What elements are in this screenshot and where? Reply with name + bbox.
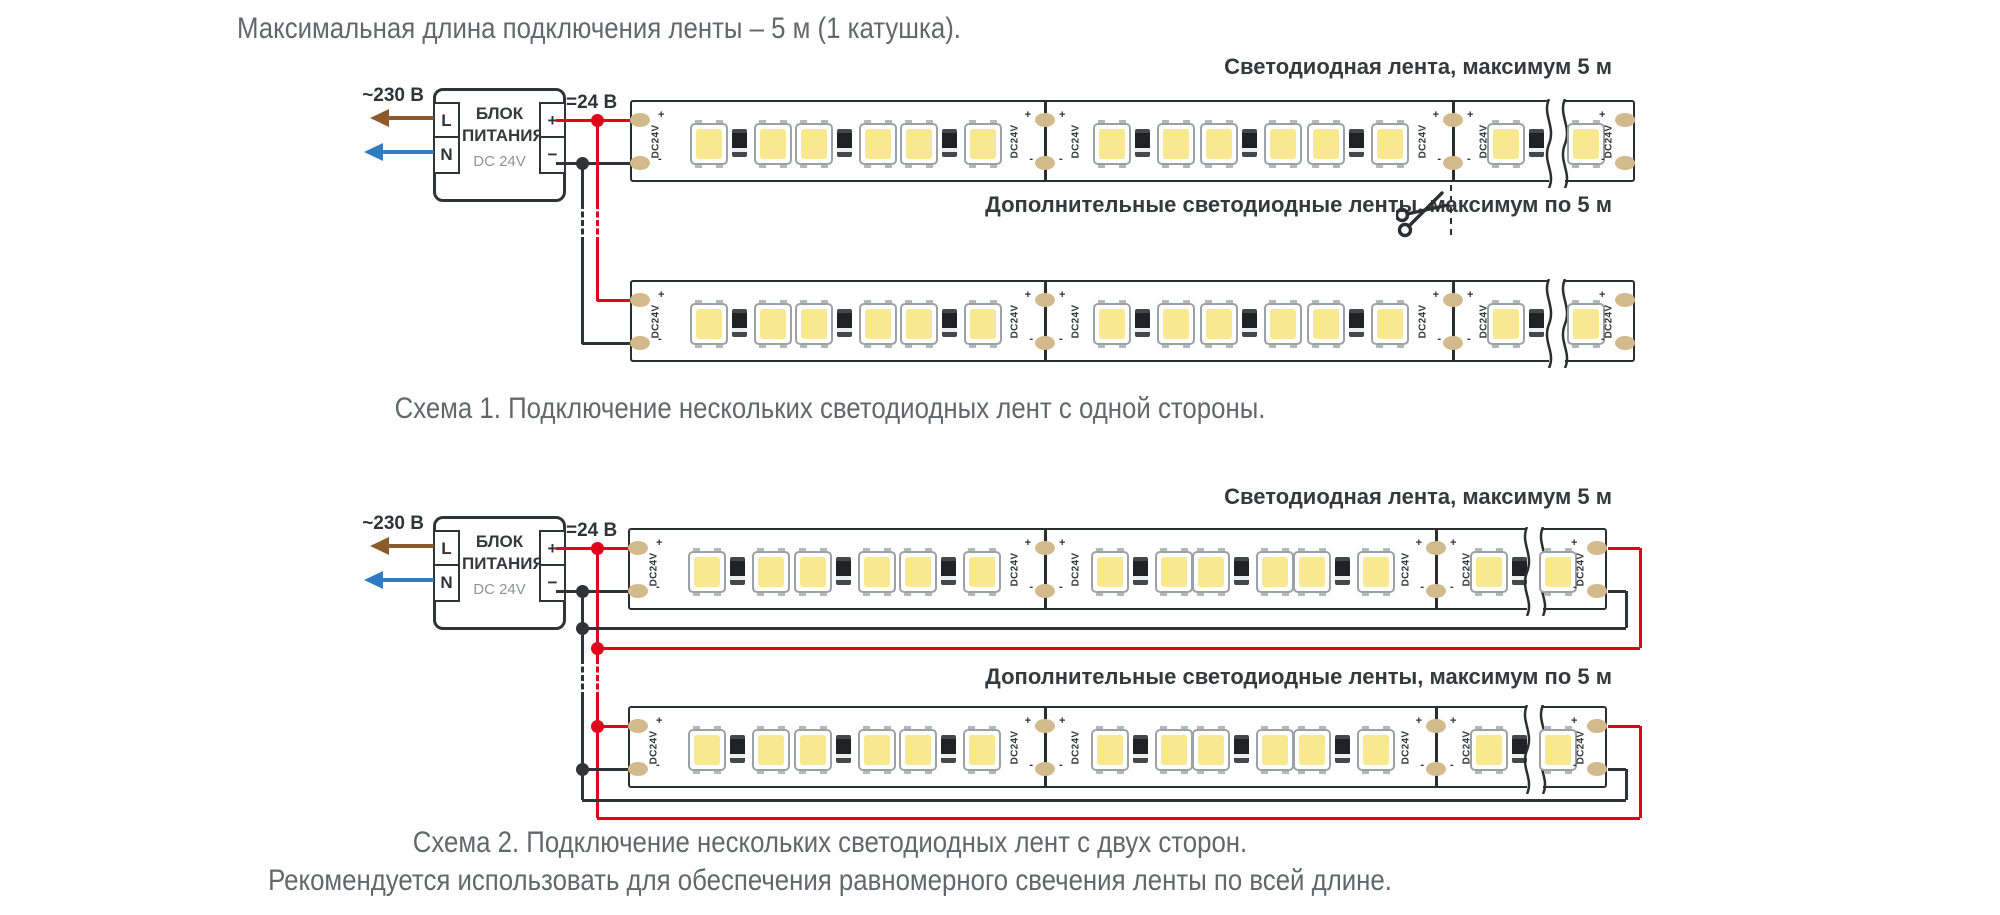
led-emitter [865, 309, 891, 339]
dc24v-marking: DC24V [1477, 102, 1491, 180]
power-supply-1: БЛОК ПИТАНИЯ DC 24V L N + − [433, 88, 566, 202]
segment-plus-mark: + [1412, 716, 1422, 727]
wire-negative [582, 799, 1626, 802]
led-chip [964, 303, 1002, 345]
dc24v-marking-text: DC24V [649, 730, 660, 764]
page-title: Максимальная длина подключения ленты – 5… [237, 12, 961, 46]
led-emitter [801, 129, 827, 159]
dc24v-marking: DC24V [647, 708, 661, 786]
resistor [1242, 309, 1257, 337]
dc24v-marking-text: DC24V [651, 124, 662, 158]
led-strip-main-2: +-DC24V++--DC24VDC24V++--DC24VDC24VDC24V… [628, 528, 1607, 610]
dc24v-marking-text: DC24V [1401, 730, 1412, 764]
dc24v-marking: DC24V [1069, 708, 1083, 786]
resistor [730, 557, 745, 585]
led-emitter [1493, 129, 1519, 159]
solder-pad [1035, 336, 1055, 350]
dc24v-marking-text: DC24V [1604, 304, 1615, 338]
solder-pad [628, 719, 648, 733]
led-chip [963, 551, 1001, 593]
solder-pad [1426, 541, 1446, 555]
mains-voltage-label-1: ~230 В [290, 85, 424, 107]
solder-pad [1615, 336, 1635, 350]
power-supply-2: БЛОК ПИТАНИЯ DC 24V L N + − [433, 516, 566, 630]
led-chip [1371, 123, 1409, 165]
dc24v-marking: DC24V [1069, 282, 1083, 360]
solder-pad [628, 541, 648, 555]
led-chip [1091, 551, 1129, 593]
led-strip-additional-1: +-DC24V++--DC24VDC24V++--DC24VDC24VDC24V… [630, 280, 1635, 362]
psu-name-line2: ПИТАНИЯ [462, 126, 537, 146]
solder-pad [1035, 762, 1055, 776]
output-voltage-label-2: =24 В [566, 520, 617, 542]
live-wire-arrow-shaft [388, 116, 434, 120]
led-emitter [1545, 557, 1571, 587]
terminal-n: N [433, 564, 460, 602]
segment-plus-mark: + [1059, 110, 1065, 121]
wire-positive [1608, 547, 1640, 550]
led-chip [1264, 303, 1302, 345]
led-emitter [1198, 557, 1224, 587]
led-chip [1192, 729, 1230, 771]
wire-negative [1608, 590, 1626, 593]
led-chip [964, 123, 1002, 165]
segment-plus-mark: + [1021, 290, 1031, 301]
led-emitter [1099, 309, 1125, 339]
dc24v-marking: DC24V [1008, 530, 1022, 608]
segment-minus-mark: - [1601, 154, 1605, 165]
dc24v-marking: DC24V [1416, 282, 1430, 360]
led-chip [1155, 729, 1193, 771]
wire-negative [581, 698, 584, 800]
dc24v-marking: DC24V [1399, 530, 1413, 608]
dc24v-marking-text: DC24V [1462, 552, 1473, 586]
led-chip [688, 729, 726, 771]
resistor [1135, 129, 1150, 157]
led-chip [1155, 551, 1193, 593]
junction-dot [576, 585, 589, 598]
solder-pad [1443, 336, 1463, 350]
solder-pad [1426, 719, 1446, 733]
resistor [942, 129, 957, 157]
neutral-wire-arrow-shaft [382, 150, 434, 154]
resistor [732, 309, 747, 337]
psu-model-label: DC 24V [462, 153, 537, 170]
led-emitter [1099, 129, 1125, 159]
led-chip [1539, 551, 1577, 593]
segment-minus-mark: - [1023, 154, 1033, 165]
resistor [837, 309, 852, 337]
segment-plus-mark: + [1429, 290, 1439, 301]
segment-plus-mark: + [1467, 110, 1473, 121]
dc24v-marking: DC24V [1460, 708, 1474, 786]
dc24v-marking: DC24V [1477, 282, 1491, 360]
dc24v-marking-text: DC24V [649, 552, 660, 586]
wire-positive [1639, 726, 1642, 818]
resistor [1133, 557, 1148, 585]
resistor [1529, 129, 1544, 157]
segment-minus-mark: - [1573, 760, 1577, 771]
dc24v-marking: DC24V [647, 530, 661, 608]
segment-plus-mark: + [1059, 538, 1065, 549]
scheme1-caption-wrap: Схема 1. Подключение нескольких светодио… [30, 392, 1630, 426]
led-emitter [969, 557, 995, 587]
dc24v-marking: DC24V [1008, 102, 1022, 180]
segment-plus-mark: + [1599, 110, 1605, 121]
resistor [1335, 557, 1350, 585]
led-chip [899, 729, 937, 771]
led-chip [900, 303, 938, 345]
solder-pad [1587, 584, 1607, 598]
junction-dot [591, 542, 604, 555]
wire-negative [581, 203, 584, 243]
dc24v-marking-text: DC24V [1071, 304, 1082, 338]
junction-dot [591, 642, 604, 655]
led-chip [1157, 303, 1195, 345]
led-chip [794, 551, 832, 593]
psu-name-line1: БЛОК [462, 104, 537, 124]
scheme2-note: Рекомендуется использовать для обеспечен… [142, 864, 1518, 898]
led-chip [1091, 729, 1129, 771]
led-chip [1487, 123, 1525, 165]
led-chip [795, 123, 833, 165]
dc24v-marking-text: DC24V [1010, 304, 1021, 338]
dc24v-marking-text: DC24V [1010, 124, 1021, 158]
led-emitter [760, 309, 786, 339]
segment-plus-mark: + [1429, 110, 1439, 121]
segment-minus-mark: - [1467, 154, 1471, 165]
led-emitter [1573, 309, 1599, 339]
led-chip [1470, 729, 1508, 771]
led-chip [1371, 303, 1409, 345]
segment-plus-mark: + [1467, 290, 1473, 301]
dc24v-marking-text: DC24V [1418, 304, 1429, 338]
terminal-l: L [433, 102, 460, 140]
dc24v-marking: DC24V [1416, 102, 1430, 180]
segment-plus-mark: + [1599, 290, 1605, 301]
led-chip [858, 551, 896, 593]
segment-minus-mark: - [1023, 760, 1033, 771]
resistor [1335, 735, 1350, 763]
resistor [1234, 735, 1249, 763]
psu-name-line2: ПИТАНИЯ [462, 554, 537, 574]
led-emitter [1377, 309, 1403, 339]
dc24v-marking-text: DC24V [1479, 124, 1490, 158]
segment-plus-mark: + [1571, 538, 1577, 549]
scissors-icon [1396, 186, 1452, 238]
dc24v-marking: DC24V [1008, 708, 1022, 786]
led-emitter [1299, 557, 1325, 587]
segment-minus-mark: - [1414, 582, 1424, 593]
led-chip [1539, 729, 1577, 771]
led-emitter [970, 129, 996, 159]
led-emitter [1206, 309, 1232, 339]
resistor [732, 129, 747, 157]
solder-pad [630, 156, 650, 170]
wire-negative [1608, 768, 1626, 771]
dc24v-marking-text: DC24V [1576, 552, 1587, 586]
led-chip [1256, 729, 1294, 771]
led-emitter [1270, 129, 1296, 159]
led-emitter [1270, 309, 1296, 339]
wire-negative [581, 243, 584, 344]
terminal-l: L [433, 530, 460, 568]
led-chip [1357, 551, 1395, 593]
wire-positive [597, 817, 1640, 820]
wire-negative [1625, 591, 1628, 628]
led-emitter [1299, 735, 1325, 765]
led-chip [1093, 303, 1131, 345]
solder-pad [1035, 584, 1055, 598]
segment-minus-mark: - [1059, 582, 1063, 593]
led-emitter [864, 735, 890, 765]
led-emitter [1313, 309, 1339, 339]
led-strip-main-1: +-DC24V++--DC24VDC24V++--DC24VDC24VDC24V… [630, 100, 1635, 182]
wire-positive [596, 243, 599, 301]
segment-minus-mark: - [1414, 760, 1424, 771]
led-chip [859, 123, 897, 165]
led-chip [899, 551, 937, 593]
segment-minus-mark: - [1059, 334, 1063, 345]
segment-plus-mark: + [1021, 110, 1031, 121]
led-emitter [801, 309, 827, 339]
resistor [836, 735, 851, 763]
solder-pad [1587, 719, 1607, 733]
dc24v-marking: DC24V [1460, 530, 1474, 608]
led-strip-additional-2: +-DC24V++--DC24VDC24V++--DC24VDC24VDC24V… [628, 706, 1607, 788]
segment-minus-mark: - [1431, 334, 1441, 345]
dc24v-marking-text: DC24V [1418, 124, 1429, 158]
led-emitter [1163, 129, 1189, 159]
led-emitter [1161, 735, 1187, 765]
segment-plus-mark: + [1059, 290, 1065, 301]
scheme2-additional-strips-label: Дополнительные светодиодные ленты, макси… [612, 664, 1612, 690]
resistor [836, 557, 851, 585]
led-emitter [969, 735, 995, 765]
led-chip [1357, 729, 1395, 771]
dc24v-marking: DC24V [1069, 102, 1083, 180]
segment-plus-mark: + [1412, 538, 1422, 549]
led-chip [1293, 551, 1331, 593]
led-emitter [1161, 557, 1187, 587]
dc24v-marking-text: DC24V [1071, 552, 1082, 586]
led-chip [900, 123, 938, 165]
resistor [942, 309, 957, 337]
led-chip [1264, 123, 1302, 165]
led-emitter [1262, 557, 1288, 587]
led-chip [794, 729, 832, 771]
scheme1-caption: Схема 1. Подключение нескольких светодио… [142, 392, 1518, 426]
led-chip [1192, 551, 1230, 593]
led-chip [1487, 303, 1525, 345]
scheme1-additional-strips-label: Дополнительные светодиодные ленты, макси… [612, 192, 1612, 218]
segment-plus-mark: + [1059, 716, 1065, 727]
solder-pad [630, 113, 650, 127]
solder-pad [1587, 762, 1607, 776]
led-emitter [1573, 129, 1599, 159]
dc24v-marking-text: DC24V [1479, 304, 1490, 338]
resistor [1234, 557, 1249, 585]
led-chip [688, 551, 726, 593]
led-emitter [1545, 735, 1571, 765]
resistor [941, 557, 956, 585]
segment-minus-mark: - [1023, 582, 1033, 593]
led-chip [752, 551, 790, 593]
psu-model-label: DC 24V [462, 581, 537, 598]
resistor [1242, 129, 1257, 157]
segment-plus-mark: + [1021, 716, 1031, 727]
live-wire-arrow-icon [370, 109, 389, 127]
led-chip [1567, 303, 1605, 345]
junction-dot [576, 622, 589, 635]
led-chip [1307, 303, 1345, 345]
segment-minus-mark: - [1059, 154, 1063, 165]
segment-plus-mark: + [1450, 716, 1456, 727]
solder-pad [1615, 113, 1635, 127]
solder-pad [1587, 541, 1607, 555]
dc24v-marking-text: DC24V [1604, 124, 1615, 158]
solder-pad [630, 293, 650, 307]
junction-dot [576, 157, 589, 170]
wire-negative [1625, 769, 1628, 800]
wiring-diagram: Максимальная длина подключения ленты – 5… [0, 0, 2000, 915]
led-emitter [1198, 735, 1224, 765]
led-chip [1157, 123, 1195, 165]
led-emitter [694, 557, 720, 587]
led-chip [690, 123, 728, 165]
solder-pad [1443, 156, 1463, 170]
dc24v-marking-text: DC24V [1010, 730, 1021, 764]
output-voltage-label-1: =24 В [566, 92, 617, 114]
led-emitter [1163, 309, 1189, 339]
solder-pad [1035, 113, 1055, 127]
dc24v-marking-text: DC24V [1576, 730, 1587, 764]
junction-dot [576, 763, 589, 776]
led-emitter [1363, 557, 1389, 587]
led-chip [1470, 551, 1508, 593]
led-emitter [1206, 129, 1232, 159]
led-chip [859, 303, 897, 345]
led-emitter [905, 557, 931, 587]
wire-negative [581, 658, 584, 698]
resistor [1349, 309, 1364, 337]
scheme2-caption: Схема 2. Подключение нескольких светодио… [142, 826, 1518, 860]
led-emitter [906, 129, 932, 159]
solder-pad [1035, 541, 1055, 555]
resistor [941, 735, 956, 763]
led-emitter [970, 309, 996, 339]
resistor [837, 129, 852, 157]
dc24v-marking: DC24V [649, 282, 663, 360]
solder-pad [630, 336, 650, 350]
led-chip [1256, 551, 1294, 593]
led-emitter [1476, 735, 1502, 765]
junction-dot [591, 720, 604, 733]
led-emitter [1313, 129, 1339, 159]
segment-minus-mark: - [1023, 334, 1033, 345]
segment-minus-mark: - [1467, 334, 1471, 345]
resistor [1349, 129, 1364, 157]
led-emitter [1363, 735, 1389, 765]
solder-pad [1443, 293, 1463, 307]
resistor [1133, 735, 1148, 763]
led-chip [963, 729, 1001, 771]
segment-plus-mark: + [1021, 538, 1031, 549]
led-chip [1200, 123, 1238, 165]
led-emitter [1493, 309, 1519, 339]
dc24v-marking: DC24V [1008, 282, 1022, 360]
solder-pad [1035, 293, 1055, 307]
scheme2-caption-wrap: Схема 2. Подключение нескольких светодио… [30, 826, 1630, 860]
terminal-minus: − [539, 564, 566, 602]
scheme2-note-wrap: Рекомендуется использовать для обеспечен… [30, 864, 1630, 898]
neutral-wire-arrow-icon [364, 571, 383, 589]
live-wire-arrow-icon [370, 537, 389, 555]
led-chip [858, 729, 896, 771]
led-emitter [694, 735, 720, 765]
led-chip [1200, 303, 1238, 345]
dc24v-marking: DC24V [1399, 708, 1413, 786]
solder-pad [1426, 762, 1446, 776]
led-chip [1307, 123, 1345, 165]
resistor [1529, 309, 1544, 337]
scheme1-main-strip-label: Светодиодная лента, максимум 5 м [612, 54, 1612, 80]
led-emitter [1476, 557, 1502, 587]
dc24v-marking-text: DC24V [651, 304, 662, 338]
led-emitter [1097, 735, 1123, 765]
segment-plus-mark: + [1450, 538, 1456, 549]
segment-minus-mark: - [1573, 582, 1577, 593]
wire-positive [597, 647, 1640, 650]
led-chip [1293, 729, 1331, 771]
led-emitter [800, 735, 826, 765]
led-emitter [1377, 129, 1403, 159]
dc24v-marking-text: DC24V [1401, 552, 1412, 586]
segment-plus-mark: + [1571, 716, 1577, 727]
led-chip [690, 303, 728, 345]
led-chip [1567, 123, 1605, 165]
led-emitter [758, 557, 784, 587]
led-emitter [905, 735, 931, 765]
live-wire-arrow-shaft [388, 544, 434, 548]
solder-pad [1035, 719, 1055, 733]
dc24v-marking: DC24V [1069, 530, 1083, 608]
segment-minus-mark: - [1450, 760, 1454, 771]
solder-pad [1443, 113, 1463, 127]
led-chip [752, 729, 790, 771]
segment-minus-mark: - [1059, 760, 1063, 771]
segment-minus-mark: - [1601, 334, 1605, 345]
led-chip [754, 303, 792, 345]
dc24v-marking-text: DC24V [1462, 730, 1473, 764]
solder-pad [1615, 156, 1635, 170]
segment-minus-mark: - [1431, 154, 1441, 165]
led-emitter [864, 557, 890, 587]
solder-pad [628, 584, 648, 598]
neutral-wire-arrow-icon [364, 143, 383, 161]
led-chip [754, 123, 792, 165]
psu-name-line1: БЛОК [462, 532, 537, 552]
solder-pad [1035, 156, 1055, 170]
junction-dot [591, 114, 604, 127]
terminal-minus: − [539, 136, 566, 174]
terminal-n: N [433, 136, 460, 174]
wire-negative [582, 627, 1626, 630]
led-chip [1093, 123, 1131, 165]
wire-positive [596, 203, 599, 243]
segment-minus-mark: - [1450, 582, 1454, 593]
wire-positive [1608, 725, 1640, 728]
